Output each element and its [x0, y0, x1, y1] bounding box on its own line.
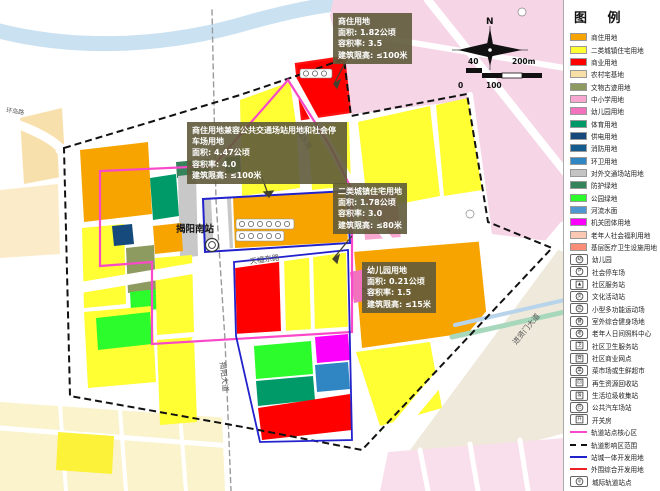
legend-item-label: 文化活动站 — [592, 291, 625, 301]
callout-title: 二类城镇住宅用地 — [338, 186, 402, 197]
legend-item-label: 站城一体开发用地 — [591, 452, 644, 462]
legend-item: 回再生资源回收站 — [570, 377, 660, 389]
legend-title: 图 例 — [574, 7, 660, 26]
legend-facility-icon: 商 — [570, 353, 588, 364]
legend-item-label: 对外交通场站用地 — [591, 168, 644, 178]
legend-icon-glyph: 商 — [575, 354, 583, 362]
legend-swatch — [570, 70, 587, 78]
legend-facility-icon: P — [570, 266, 588, 277]
legend-swatch — [570, 33, 587, 41]
legend-item: 圾生活垃圾收集站 — [570, 389, 660, 401]
legend-item-label: 老年人社会福利用地 — [591, 230, 650, 240]
callout-area: 面积: 1.78公顷 — [338, 197, 402, 208]
legend-item-label: 社区卫生服务站 — [592, 341, 638, 351]
legend-item-label: 社会停车场 — [592, 267, 625, 277]
legend-facility-icon: ▲ — [570, 279, 588, 290]
legend-item-label: 室外综合健身场地 — [592, 316, 645, 326]
legend-item-label: 轨道影响区范围 — [591, 440, 637, 450]
legend-item: 防护绿地 — [570, 179, 660, 191]
legend-swatch — [570, 157, 587, 165]
legend-facility-icon: 回 — [570, 377, 588, 388]
zoning-map: N 40 200m 0 100 环岛路 梅东路 天福东路 揭阳大道 进贤门大道 — [0, 0, 565, 491]
legend-icon-glyph: ◎ — [575, 478, 583, 486]
planning-map-page: N 40 200m 0 100 环岛路 梅东路 天福东路 揭阳大道 进贤门大道 — [0, 0, 660, 491]
legend-item: 老年人社会福利用地 — [570, 229, 660, 241]
legend-item-label: 农村宅基地 — [591, 69, 624, 79]
legend-item: 公园绿地 — [570, 191, 660, 203]
legend-facility-icon: 老 — [570, 328, 588, 339]
legend-swatch — [570, 132, 587, 140]
legend-facility-icon: ◎ — [570, 476, 588, 487]
legend-item: ◎城际轨道站点 — [570, 475, 660, 487]
legend-item: 基层医疗卫生设施用地 — [570, 241, 660, 253]
legend-item-label: 环卫用地 — [591, 156, 617, 166]
legend-item: 外围综合开发用地 — [570, 463, 660, 475]
legend-item: 运小型多功能运动场 — [570, 303, 660, 315]
legend-item-label: 社区服务站 — [592, 279, 625, 289]
legend-icon-glyph: 健 — [575, 317, 583, 325]
legend-facility-icon: 幼 — [570, 254, 588, 265]
legend-item-label: 幼儿园 — [592, 254, 612, 264]
legend-panel: 图 例 商住用地二类城镇住宅用地商业用地农村宅基地文物古迹用地中小学用地幼儿园用… — [563, 0, 660, 491]
legend-swatch — [570, 206, 587, 214]
callout-height: 建筑限高: ≤100米 — [192, 170, 342, 181]
map-canvas: N 40 200m 0 100 环岛路 梅东路 天福东路 揭阳大道 进贤门大道 — [0, 0, 565, 491]
legend-item-label: 城际轨道站点 — [592, 477, 632, 487]
legend-item-label: 生活垃圾收集站 — [592, 390, 638, 400]
legend-item-label: 文物古迹用地 — [591, 82, 631, 92]
legend-item: 菜菜市场或生鲜超市 — [570, 364, 660, 376]
legend-swatch — [570, 120, 587, 128]
legend-swatch — [570, 218, 587, 226]
legend-item: 供电用地 — [570, 130, 660, 142]
callout-title: 商住用地 — [338, 16, 407, 27]
legend-item-label: 河流水面 — [591, 205, 617, 215]
compass-north-label: N — [486, 17, 494, 27]
legend-item: 开开关房 — [570, 414, 660, 426]
legend-icon-glyph: 卫 — [575, 342, 583, 350]
legend-item: P社会停车场 — [570, 266, 660, 278]
legend-swatch — [570, 169, 587, 177]
callout-area: 面积: 4.47公顷 — [192, 147, 342, 158]
legend-item: 体育用地 — [570, 117, 660, 129]
legend-icon-glyph: 圾 — [575, 391, 583, 399]
legend-icon-glyph: 回 — [575, 379, 583, 387]
legend-facility-icon: 圾 — [570, 390, 588, 401]
callout-height: 建筑限高: ≤100米 — [338, 50, 407, 61]
legend-item: 商住用地 — [570, 31, 660, 43]
legend-line-sample — [570, 431, 587, 433]
legend-item-label: 公园绿地 — [591, 193, 617, 203]
legend-swatch — [570, 144, 587, 152]
scale-0: 0 — [458, 81, 463, 90]
legend-item: 幼幼儿园 — [570, 253, 660, 265]
legend-item-label: 老年人日间照料中心 — [592, 328, 651, 338]
legend-item: 卫社区卫生服务站 — [570, 340, 660, 352]
legend-facility-icon: 运 — [570, 303, 588, 314]
legend-item: 文文化活动站 — [570, 290, 660, 302]
legend-swatch — [570, 243, 587, 251]
legend-item-label: 体育用地 — [591, 119, 617, 129]
legend-item: 二类城镇住宅用地 — [570, 43, 660, 55]
legend-item-label: 公共汽车场站 — [592, 402, 632, 412]
legend-item-label: 商住用地 — [591, 32, 617, 42]
legend-facility-icon: 巴 — [570, 402, 588, 413]
legend-item: 轨道站点核心区 — [570, 426, 660, 438]
legend-swatch — [570, 83, 587, 91]
callout-far: 容积率: 1.5 — [367, 287, 431, 298]
callout-residential-r2: 二类城镇住宅用地 面积: 1.78公顷 容积率: 3.0 建筑限高: ≤80米 — [333, 183, 407, 234]
legend-item-label: 社区商业网点 — [592, 353, 632, 363]
callout-commercial-residential: 商住用地 面积: 1.82公顷 容积率: 3.5 建筑限高: ≤100米 — [333, 13, 412, 64]
legend-swatch — [570, 107, 587, 115]
legend-item-label: 小型多功能运动场 — [592, 304, 645, 314]
scale-100: 100 — [486, 81, 502, 90]
legend-item: 商业用地 — [570, 56, 660, 68]
callout-mixed-transport: 商住用地兼容公共交通场站用地和社会停车场用地 面积: 4.47公顷 容积率: 4… — [187, 122, 347, 184]
legend-line-sample — [570, 456, 587, 458]
callout-area: 面积: 1.82公顷 — [338, 27, 407, 38]
legend-item-label: 外围综合开发用地 — [591, 464, 644, 474]
callout-height: 建筑限高: ≤80米 — [338, 220, 402, 231]
legend-icon-glyph: 幼 — [575, 256, 583, 264]
callout-title: 幼儿园用地 — [367, 265, 431, 276]
station-name-label: 揭阳南站 — [176, 223, 215, 235]
callout-kindergarten: 幼儿园用地 面积: 0.21公顷 容积率: 1.5 建筑限高: ≤15米 — [362, 262, 436, 313]
callout-far: 容积率: 4.0 — [192, 159, 342, 170]
legend-item: ▲社区服务站 — [570, 278, 660, 290]
legend-item: 河流水面 — [570, 204, 660, 216]
legend-item: 老老年人日间照料中心 — [570, 327, 660, 339]
legend-item-label: 机关团体用地 — [591, 217, 631, 227]
legend-item: 消防用地 — [570, 142, 660, 154]
legend-icon-glyph: 菜 — [575, 367, 583, 375]
callout-area: 面积: 0.21公顷 — [367, 276, 431, 287]
legend-icon-glyph: ▲ — [575, 280, 583, 288]
legend-item: 幼儿园用地 — [570, 105, 660, 117]
legend-swatch — [570, 231, 587, 239]
legend-facility-icon: 菜 — [570, 365, 588, 376]
legend-item: 中小学用地 — [570, 93, 660, 105]
legend-item: 机关团体用地 — [570, 216, 660, 228]
legend-item-label: 轨道站点核心区 — [591, 427, 637, 437]
callout-title: 商住用地兼容公共交通场站用地和社会停车场用地 — [192, 125, 342, 147]
scale-200m: 200m — [512, 57, 536, 66]
scale-40: 40 — [468, 57, 478, 66]
legend-item: 对外交通场站用地 — [570, 167, 660, 179]
legend-facility-icon: 文 — [570, 291, 588, 302]
legend-item-label: 供电用地 — [591, 131, 617, 141]
legend-icon-glyph: P — [575, 268, 583, 276]
legend-icon-glyph: 文 — [575, 293, 583, 301]
metro-station-icon — [206, 239, 219, 252]
legend-item-label: 菜市场或生鲜超市 — [592, 365, 645, 375]
legend-item-label: 再生资源回收站 — [592, 378, 638, 388]
callout-height: 建筑限高: ≤15米 — [367, 299, 431, 310]
legend-icon-glyph: 运 — [575, 305, 583, 313]
legend-item: 巴公共汽车场站 — [570, 401, 660, 413]
callout-far: 容积率: 3.0 — [338, 208, 402, 219]
legend-icon-glyph: 老 — [575, 330, 583, 338]
legend-swatch — [570, 95, 587, 103]
legend-swatch — [570, 181, 587, 189]
callout-far: 容积率: 3.5 — [338, 38, 407, 49]
legend-line-sample — [570, 468, 587, 470]
legend-item: 健室外综合健身场地 — [570, 315, 660, 327]
legend-item-label: 防护绿地 — [591, 180, 617, 190]
legend-swatch — [570, 46, 587, 54]
legend-facility-icon: 开 — [570, 414, 588, 425]
legend-item-label: 二类城镇住宅用地 — [591, 45, 644, 55]
legend-item-label: 消防用地 — [591, 143, 617, 153]
legend-item: 文物古迹用地 — [570, 80, 660, 92]
legend-item-label: 基层医疗卫生设施用地 — [591, 242, 657, 252]
legend-icon-glyph: 开 — [575, 416, 583, 424]
legend-item-label: 中小学用地 — [591, 94, 624, 104]
legend-item: 商社区商业网点 — [570, 352, 660, 364]
legend-item: 农村宅基地 — [570, 68, 660, 80]
legend-facility-icon: 健 — [570, 316, 588, 327]
legend-item-label: 开关房 — [592, 415, 612, 425]
legend-swatch — [570, 58, 587, 66]
legend-item-label: 商业用地 — [591, 57, 617, 67]
legend-items: 商住用地二类城镇住宅用地商业用地农村宅基地文物古迹用地中小学用地幼儿园用地体育用… — [570, 31, 660, 488]
legend-icon-glyph: 巴 — [575, 404, 583, 412]
outer-development-parcel — [296, 57, 350, 119]
legend-facility-icon: 卫 — [570, 340, 588, 351]
legend-item: 站城一体开发用地 — [570, 451, 660, 463]
legend-item: 轨道影响区范围 — [570, 438, 660, 450]
legend-item-label: 幼儿园用地 — [591, 106, 624, 116]
legend-line-sample — [570, 444, 587, 446]
legend-item: 环卫用地 — [570, 154, 660, 166]
legend-swatch — [570, 194, 587, 202]
